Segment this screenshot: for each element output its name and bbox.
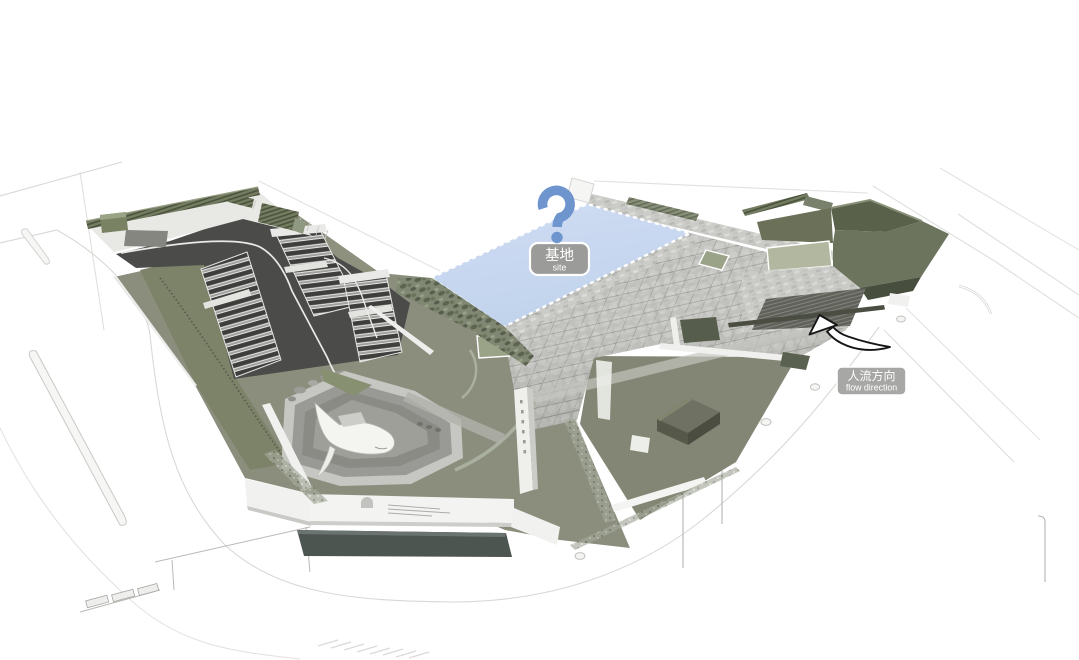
svg-text:site: site [553,263,567,273]
svg-text:基地: 基地 [545,247,574,264]
svg-text:flow direction: flow direction [846,383,897,393]
svg-text:人流方向: 人流方向 [847,368,895,383]
